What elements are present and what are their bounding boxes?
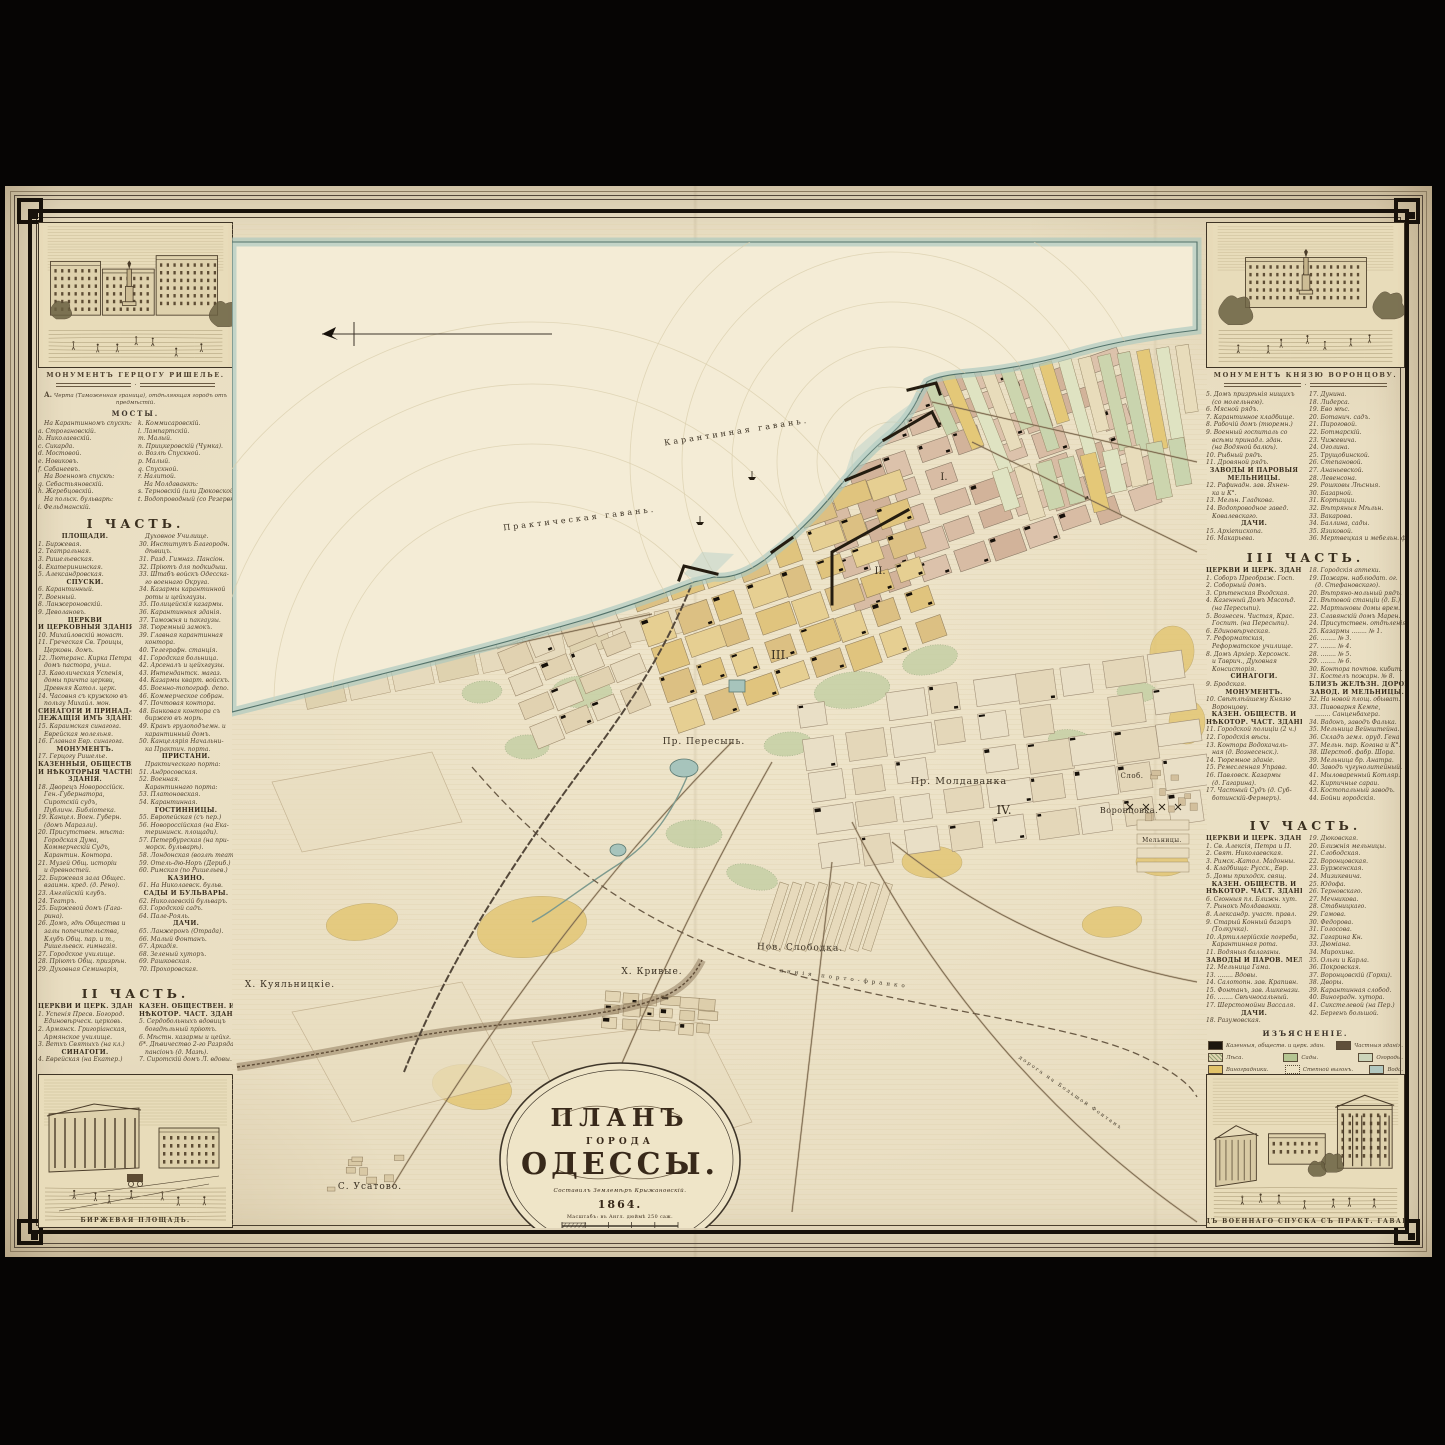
map-sheet: МОНУМЕНТЪ ГЕРЦОГУ РИШЕЛЬЕ. · А. Черта (Т… [5, 186, 1432, 1257]
list-line: Армянское училище. [38, 1034, 132, 1042]
list-line: Церковн. домъ. [38, 647, 132, 655]
list-line: ДАЧИ. [1206, 1010, 1302, 1018]
list-line: 18. Лидерса. [1309, 399, 1405, 407]
list-line: домы причта церкви, [38, 677, 132, 685]
map-key-label: Частныя зданія. [1354, 1043, 1403, 1049]
list-line: 7. Сиротскій домъ Л. вдовы. [139, 1056, 233, 1064]
list-line: 25. Юдофа. [1309, 881, 1405, 889]
list-line: Ришельевск. гимназія. [38, 943, 132, 951]
list-line: 59. Отель-дю-Норъ (Дериб.) [139, 860, 233, 868]
list-line: 13. Каѳолическая Успенія, [38, 670, 132, 678]
bridges-title: МОСТЫ. [38, 409, 233, 418]
list-line: КАЗЕН. ОБЩЕСТВ. И [1206, 711, 1302, 719]
map-key-label: Огороды. [1376, 1055, 1403, 1061]
list-line: 20. Вѣтряно-мольный рядъ. [1309, 590, 1405, 598]
frame-corner-ornament [1394, 198, 1420, 224]
list-line: 8. Ланжероновскій. [38, 601, 132, 609]
list-line: 39. Главная карантинная [139, 632, 233, 640]
list-line: терининск. площади). [139, 829, 233, 837]
list-line: Сиротскій судъ, [38, 799, 132, 807]
list-line: Городская Дума, [38, 837, 132, 845]
list-line: 40. Виноградн. хутора. [1309, 994, 1405, 1002]
map-key-label: Степной выгонъ. [1303, 1067, 1353, 1073]
list-line: Практическаго порта: [139, 761, 233, 769]
map-key-label: Виноградники. [1226, 1067, 1268, 1073]
list-line: p. Малый. [138, 458, 236, 466]
list-line: карантинный домъ. [139, 731, 233, 739]
list-line: 31. Костелъ пожарн. № 8. [1309, 673, 1405, 681]
list-line: МОНУМЕНТЪ. [1206, 689, 1302, 697]
list-line: залы попечительства, [38, 928, 132, 936]
list-line: Госпит. (на Пересыпи). [1206, 620, 1302, 628]
list-line: 49. Кранъ грузоподъемн. и [139, 723, 233, 731]
list-line: 8. Александр. участ. правл. [1206, 911, 1302, 919]
steppe-swatch-icon [1285, 1065, 1300, 1074]
list-line: НѢКОТОР. ЧАСТ. ЗДАНІЯ. [1206, 888, 1302, 896]
list-line: 19. Пожарн. наблюдат. ог. [1309, 575, 1405, 583]
forest-swatch-icon [1208, 1053, 1223, 1062]
list-line: g. Себастьяновскій. [38, 481, 132, 489]
list-line: 1. Св. Алексія, Петра и П. [1206, 843, 1302, 851]
list-line: Духовное Училище. [139, 533, 233, 541]
list-line: БЛИЗЪ ЖЕЛѢЗН. ДОРОГИ [1309, 681, 1405, 689]
list-line: s. Терновскій (или Дюковской дамбы). [138, 488, 236, 496]
list-line: 15. Архіепископа. [1206, 528, 1302, 536]
list-line: 20. Ботанич. садъ. [1309, 414, 1405, 422]
list-line: 30. Базарной. [1309, 490, 1405, 498]
list-line: 16. ........ Свѣчносальный. [1206, 994, 1302, 1002]
list-line: 43. Костопальный заводъ. [1309, 787, 1405, 795]
list-line: 24. Оголина. [1309, 444, 1405, 452]
list-line: 17. Шерстомойни Вассаля. [1206, 1002, 1302, 1010]
list-line: (на Водяной балкѣ). [1206, 444, 1302, 452]
list-line: 28. Левенсона. [1309, 475, 1405, 483]
list-line: Карантиннаго порта: [139, 784, 233, 792]
list-line: 40. Телеграфн. станція. [139, 647, 233, 655]
list-line: 48. Банковая контора съ [139, 708, 233, 716]
list-line: ЦЕРКВИ И ЦЕРК. ЗДАН. [1206, 567, 1302, 575]
map-label: III. [771, 648, 789, 662]
list-line: 18. Дворецъ Новороссійск. [38, 784, 132, 792]
boundary-note: А. Черта (Таможенная граница), отдѣляюща… [39, 391, 232, 407]
map-key-title: ИЗЪЯСНЕНІЕ. [1206, 1029, 1405, 1038]
list-line: 10. Артиллерійскіе погреба, [1206, 934, 1302, 942]
list-line: 44. Бойни городскія. [1309, 795, 1405, 803]
list-line: 24. Присутствен. отдѣленія. [1309, 620, 1405, 628]
list-line: 23. Чижевича. [1309, 437, 1405, 445]
cartouche-text: Составилъ Землемѣръ Крыжановскій. [554, 1188, 687, 1194]
list-line: ка Практич. порта. [139, 746, 233, 754]
list-line: пансіонъ (д. Мазѣ). [139, 1049, 233, 1057]
list-line: 24. Театръ. [38, 898, 132, 906]
list-line: 37. Таможня и пакгаузы. [139, 617, 233, 625]
list-line: 7. Карантинное кладбище. [1206, 414, 1302, 422]
list-line: 33. Дюміана. [1309, 941, 1405, 949]
list-line: 44. Казармы кварт. войскъ. [139, 677, 233, 685]
map-key-item: Частныя зданія. [1336, 1041, 1403, 1050]
list-line: 69. Рашковская. [139, 958, 233, 966]
list-line: k. Коммисаровскій. [138, 420, 236, 428]
list-line: 17. Герцогу Ришелье. [38, 753, 132, 761]
frame-corner-ornament [17, 198, 43, 224]
city-map: Карантинная гавань.Практическая гавань.П… [232, 222, 1207, 1228]
list-line: Ковалевскаго. [1206, 513, 1302, 521]
map-label: Х. Кривые. [621, 967, 682, 977]
list-line: 6. Мясной рядъ. [1206, 406, 1302, 414]
map-label: Нов. Слободка. [757, 941, 843, 954]
list-line: 58. Лондонская (возлѣ теат.) [139, 852, 233, 860]
cartouche-text: ПЛАНЪ [550, 1103, 689, 1132]
list-line: 36. Складъ земл. оруд. Гена. [1309, 734, 1405, 742]
list-line: НѢКОТОР. ЧАСТ. ЗДАНІЕ. [139, 1011, 233, 1019]
part2-list: ЦЕРКВИ И ЦЕРК. ЗДАНІЯ.1. Успенія Пресв. … [38, 1003, 233, 1065]
list-line: b. Николаевскій. [38, 435, 132, 443]
list-line: роты и цейхгаузы. [139, 594, 233, 602]
list-line: 17. Дунина. [1309, 391, 1405, 399]
list-line: 31. Разд. Гимназ. Пансіон. [139, 556, 233, 564]
list-line: 14. Тюремное зданіе. [1206, 757, 1302, 765]
list-line: 25. Трущобинской. [1309, 452, 1405, 460]
list-line: 2. Свят. Николаевская. [1206, 850, 1302, 858]
list-line: 30. Федорова. [1309, 919, 1405, 927]
list-line: 12. Мельница Гама. [1206, 964, 1302, 972]
list-line: 36. Мертвецкая и мебельн. ф. [1309, 535, 1405, 543]
list-line: 8. Домъ Архіер. Херсонск. [1206, 651, 1302, 659]
list-line: 11. Дровяной рядъ. [1206, 459, 1302, 467]
list-line: ЦЕРКВИ И ЦЕРК. ЗДАН. [1206, 835, 1302, 843]
list-line: КАЗЕННЫЯ, ОБЩЕСТВЕН. [38, 761, 132, 769]
list-line: КАЗЕН. ОБЩЕСТВЕН. И [139, 1003, 233, 1011]
map-label: Слоб. [1121, 772, 1144, 780]
list-line: 21. Слободская. [1309, 850, 1405, 858]
photo-background: МОНУМЕНТЪ ГЕРЦОГУ РИШЕЛЬЕ. · А. Черта (Т… [0, 0, 1445, 1445]
list-line: 52. Военная. [139, 776, 233, 784]
list-line: 41. Сикстелевой (на Пер.) [1309, 1002, 1405, 1010]
map-key-label: Лѣса. [1226, 1055, 1243, 1061]
map-label: IV. [996, 803, 1011, 817]
list-line: ЛЕЖАЩІЯ ИМЪ ЗДАНІЯ. [38, 715, 132, 723]
list-line: 2. Театральная. [38, 548, 132, 556]
part4-list: ЦЕРКВИ И ЦЕРК. ЗДАН.1. Св. Алексія, Петр… [1206, 835, 1405, 1025]
list-line: o. Возлѣ Спускной. [138, 450, 236, 458]
list-line: f. Сабанеевъ. [38, 466, 132, 474]
list-line: 32. Пріютъ для подкидыш. [139, 564, 233, 572]
list-line: 33. Вакарова. [1309, 513, 1405, 521]
list-line: d. Мостовой. [38, 450, 132, 458]
list-line: 12. Лютеранс. Кирка Петра, [38, 655, 132, 663]
list-line: СИНАГОГИ. [38, 1049, 132, 1057]
map-label: I. [940, 472, 947, 483]
list-line: 1. Соборъ Преображ. Госп. [1206, 575, 1302, 583]
list-line: го военнаго Округа. [139, 579, 233, 587]
ornament-divider: · [56, 382, 215, 388]
list-line: e. Новиковъ. [38, 458, 132, 466]
list-line: 27. Мечникова. [1309, 896, 1405, 904]
list-line: Ген.-Губернатора, [38, 791, 132, 799]
list-line: КАЗЕН. ОБЩЕСТВ. И [1206, 881, 1302, 889]
list-line: 6. Единовѣрческая. [1206, 628, 1302, 636]
legend-column-right: МОНУМЕНТЪ КНЯЗЮ ВОРОНЦОВУ. · 5. Домъ при… [1206, 222, 1405, 1228]
list-line: Клубъ Общ. пар. и т., [38, 936, 132, 944]
list-line: И НѢКОТОРЫЯ ЧАСТНЫЯ [38, 769, 132, 777]
garden-swatch-icon [1283, 1053, 1298, 1062]
list-line: богадѣльный пріютъ. [139, 1026, 233, 1034]
list-line: ка и К°. [1206, 490, 1302, 498]
list-line: 3. Римск.-Катол. Мадонны. [1206, 858, 1302, 866]
list-line: ЗАВОД. И МЕЛЬНИЦЫ. [1309, 689, 1405, 697]
list-line: n. Прицкеровскій (Чумка). [138, 443, 236, 451]
list-line: морск. бульварѣ). [139, 844, 233, 852]
list-line: 35. Ольги и Карла. [1309, 957, 1405, 965]
list-line: ная (д. Вознесенск.). [1206, 749, 1302, 757]
list-line: взаимн. кред. (д. Рено). [38, 882, 132, 890]
map-key-item: Степной выгонъ. [1285, 1065, 1353, 1074]
list-line: Карантинная рота. [1206, 941, 1302, 949]
list-line: 39. Карантинная слобод. [1309, 987, 1405, 995]
list-line: 32. На новой площ. обыват. [1309, 696, 1405, 704]
list-line: 4. Екатерининская. [38, 564, 132, 572]
list-line: 36. Покровская. [1309, 964, 1405, 972]
list-line: 5. Домы приходск. свящ. [1206, 873, 1302, 881]
list-line: ПЛОЩАДИ. [38, 533, 132, 541]
list-line: 38. Дворы. [1309, 979, 1405, 987]
list-line: 3. Срѣтенская Входская. [1206, 590, 1302, 598]
list-line: дѣвицъ. [139, 548, 233, 556]
list-line: 42. Арсеналъ и цейхгаузы. [139, 662, 233, 670]
list-line: 70. Прохоровская. [139, 966, 233, 974]
list-line: 26. Терновскаго. [1309, 888, 1405, 896]
list-line: МЕЛЬНИЦЫ. [1206, 475, 1302, 483]
list-line: 42. Кирпичные сараи. [1309, 780, 1405, 788]
list-line: 37. Воронцовскій (Горки). [1309, 972, 1405, 980]
list-line: 9. Деволановъ. [38, 609, 132, 617]
list-line: 29. Рошковы Лѣсныя. [1309, 482, 1405, 490]
list-line: контора. [139, 639, 233, 647]
map-label: Мельницы. [1142, 837, 1182, 844]
list-line: рина). [38, 913, 132, 921]
list-line: m. Малый. [138, 435, 236, 443]
list-line: 31. Кортацци. [1309, 497, 1405, 505]
vignette-exchange-square: БИРЖЕВАЯ ПЛОЩАДЬ. [38, 1074, 233, 1228]
map-label: Пр. Молдаванка [911, 776, 1007, 787]
list-line: 16. Павловск. Казармы [1206, 772, 1302, 780]
vignette-caption: МОНУМЕНТЪ ГЕРЦОГУ РИШЕЛЬЕ. [38, 371, 233, 379]
list-line: 22. Ботмарскій. [1309, 429, 1405, 437]
list-line: 21. Музей Общ. исторіи [38, 860, 132, 868]
map-key-item: Казенныя, обществ. и церк. здан. [1208, 1041, 1325, 1050]
list-line: 23. Англійскій клубъ. [38, 890, 132, 898]
list-line: 4. Казенный Домъ Мясоѣд. [1206, 597, 1302, 605]
list-line: ........ Санценбахера. [1309, 711, 1405, 719]
list-line: 64. Пале-Рояль. [139, 913, 233, 921]
list-line: 6. Карантинный. [38, 586, 132, 594]
list-line: i. Фельдманскій. [38, 504, 132, 512]
list-line: 11. Греческая Св. Троицы, [38, 639, 132, 647]
list-line: 20. Присутствен. мѣста: [38, 829, 132, 837]
list-line: 55. Европейская (съ пер.) [139, 814, 233, 822]
list-line: 34. Вадонъ, заводъ Фалька. [1309, 719, 1405, 727]
list-line: 43. Интендантск. магаз. [139, 670, 233, 678]
list-line: 15. Караимская синагога. [38, 723, 132, 731]
list-line: 13. Мельн. Гладкова. [1206, 497, 1302, 505]
list-line: 17. Частный Судъ (д. Суб- [1206, 787, 1302, 795]
list-line: 7. Рынокъ Молдаванки. [1206, 903, 1302, 911]
list-line: 3. Ришельевская. [38, 556, 132, 564]
list-line: 39. Мельница бр. Анатра. [1309, 757, 1405, 765]
list-line: 62. Николаевскій бульваръ. [139, 898, 233, 906]
list-line: 21. Вѣтовой станціи (д. Б.) [1309, 597, 1405, 605]
list-line: 61. На Николаевск. бульв. [139, 882, 233, 890]
part3-title: III ЧАСТЬ. [1206, 550, 1405, 565]
map-key: Казенныя, обществ. и церк. здан.Частныя … [1206, 1041, 1405, 1074]
list-line: 67. Аркадія. [139, 943, 233, 951]
list-line: (со молельнею). [1206, 399, 1302, 407]
list-line: 26. Домъ, гдѣ Общества и [38, 920, 132, 928]
list-line: 9. Бродская. [1206, 681, 1302, 689]
list-line: ЦЕРКВИ И ЦЕРК. ЗДАНІЯ. [38, 1003, 132, 1011]
list-line: 15. Ремесленная Управа. [1206, 764, 1302, 772]
list-line: ДАЧИ. [1206, 520, 1302, 528]
list-line: 30. Контора почтов. кибит. [1309, 666, 1405, 674]
list-line: ЗАВОДЫ И ПАРОВ. МЕЛЬН. [1206, 957, 1302, 965]
vignette-richelieu-monument [38, 222, 233, 368]
map-label: Х. Куяльницкіе. [245, 980, 335, 990]
list-line: 32. Гагарина Кн. [1309, 934, 1405, 942]
list-line: 20. Ближнія мельницы. [1309, 843, 1405, 851]
map-label: Пр. Пересыпь. [663, 737, 746, 747]
map-label: С. Усатово. [338, 1182, 402, 1192]
list-line: 8. Рабочій домъ (тюремн.) [1206, 421, 1302, 429]
map-label: II. [874, 566, 885, 577]
map-key-label: Сады. [1301, 1055, 1318, 1061]
list-line: 40. Заводъ чугунолитейный. [1309, 764, 1405, 772]
list-line: 19. Ево мѣс. [1309, 406, 1405, 414]
list-line: 23. Славянскій домъ Марен. [1309, 613, 1405, 621]
list-line: 42. Бергенъ большой. [1309, 1010, 1405, 1018]
list-line: И ЦЕРКОВНЫЯ ЗДАНІЯ. [38, 624, 132, 632]
list-line: 26. Степановой. [1309, 459, 1405, 467]
list-line: 2. Армянск. Григоріанская, [38, 1026, 132, 1034]
list-line: 16. Главная Евр. синагога. [38, 738, 132, 746]
list-line: 24. Мизикевича. [1309, 873, 1405, 881]
list-line: c. Сикарда. [38, 443, 132, 451]
list-line: 51. Андросовская. [139, 769, 233, 777]
cartouche-text: ГОРОДА [586, 1137, 654, 1147]
list-line: ЦЕРКВИ [38, 617, 132, 625]
list-line: ЗАВОДЫ И ПАРОВЫЯ [1206, 467, 1302, 475]
list-line: 4. Кладбища: Русск., Евр. [1206, 865, 1302, 873]
map-key-item: Сады. [1283, 1053, 1318, 1062]
list-line: 33. Пивоварня Кемпе, [1309, 704, 1405, 712]
list-line: ГОСТИННИЦЫ. [139, 807, 233, 815]
list-line: ПРИСТАНИ. [139, 753, 233, 761]
list-line: 56. Новороссійская (на Ека- [139, 822, 233, 830]
cartouche-text: ОДЕССЫ. [521, 1147, 719, 1182]
list-line: ЗДАНІЯ. [38, 776, 132, 784]
list-line: 35. Язиковой. [1309, 528, 1405, 536]
list-line: 35. Полицейскія казармы. [139, 601, 233, 609]
list-line: Консисторія. [1206, 666, 1302, 674]
water-swatch-icon [1369, 1065, 1384, 1074]
list-line: 26. ........ № 3. [1309, 635, 1405, 643]
list-line: 14. Водопроводное завед. [1206, 505, 1302, 513]
continued-list: 5. Домъ призрѣнія нищихъ (со молельнею).… [1206, 391, 1405, 545]
list-line: Единовѣрческ. церковь. [38, 1018, 132, 1026]
list-line: 4. Еврейская (на Екатер.) [38, 1056, 132, 1064]
list-line: 5. Домъ призрѣнія нищихъ [1206, 391, 1302, 399]
kitchen-swatch-icon [1358, 1053, 1373, 1062]
bridges-list: На Карантинномъ спускѣ:a. Строгановскій.… [38, 420, 233, 511]
list-line: и древностей. [38, 867, 132, 875]
part4-title: IV ЧАСТЬ. [1206, 818, 1405, 833]
list-line: 2. Соборный домъ. [1206, 582, 1302, 590]
list-line: НѢКОТОР. ЧАСТ. ЗДАНІЯ. [1206, 719, 1302, 727]
bldg-private-swatch-icon [1336, 1041, 1351, 1050]
list-line: 25. Казармы ........ № 1. [1309, 628, 1405, 636]
list-line: Карантин. Контора. [38, 852, 132, 860]
list-line: 37. Мельн. пар. Когана и К°. [1309, 742, 1405, 750]
list-line: 22. Биржевая зала Общес. [38, 875, 132, 883]
part1-title: I ЧАСТЬ. [38, 516, 233, 531]
list-line: 6. Мѣстн. казармы и цейхг. [139, 1034, 233, 1042]
list-line: 38. Тюремный замокъ. [139, 624, 233, 632]
list-line: 22. Мартыновы домы врем. [1309, 605, 1405, 613]
list-line: (д. Стефановскаго). [1309, 582, 1405, 590]
list-line: 10. Свѣтлѣйшему Князю [1206, 696, 1302, 704]
list-line: 16. Макарьева. [1206, 535, 1302, 543]
list-line: СИНАГОГИ. [1206, 673, 1302, 681]
list-line: 28. ........ № 5. [1309, 651, 1405, 659]
list-line: На Молдаванкѣ: [138, 481, 236, 489]
list-line: 6*. Дѣвичество 2-го Разряда [139, 1041, 233, 1049]
cartouche-text: 1864. [598, 1198, 642, 1211]
list-line: Публичн. Библіотека. [38, 807, 132, 815]
list-line: 11. Водяныя балаганы. [1206, 949, 1302, 957]
list-line: 5. Сердобольныхъ вдовицъ [139, 1018, 233, 1026]
vignette-caption: МОНУМЕНТЪ КНЯЗЮ ВОРОНЦОВУ. [1206, 371, 1405, 379]
svg-text:БИРЖЕВАЯ ПЛОЩАДЬ.: БИРЖЕВАЯ ПЛОЩАДЬ. [80, 1217, 190, 1224]
list-line: 19. Канцел. Воен. Губерн. [38, 814, 132, 822]
list-line: q. Спускной. [138, 466, 236, 474]
list-line: МОНУМЕНТЪ. [38, 746, 132, 754]
list-line: 7. Военный. [38, 594, 132, 602]
list-line: биржею въ морѣ. [139, 715, 233, 723]
list-line: домъ пастора, учил. [38, 662, 132, 670]
list-line: и Таврич., Духовная [1206, 658, 1302, 666]
list-line: 34. Баллина, сады. [1309, 520, 1405, 528]
map-label: Воронцовка. [1100, 806, 1158, 815]
list-line: 38. Шерстоб. фабр. Шора. [1309, 749, 1405, 757]
list-line: САДЫ И БУЛЬВАРЫ. [139, 890, 233, 898]
list-line: 9. Военный госпиталь со [1206, 429, 1302, 437]
list-line: всѣми принадл. здан. [1206, 437, 1302, 445]
list-line: 6. Сгонныя пл. Ближн. хут. [1206, 896, 1302, 904]
list-line: 54. Карантинная. [139, 799, 233, 807]
list-line: 21. Пироговой. [1309, 421, 1405, 429]
list-line: СИНАГОГИ И ПРИНАД- [38, 708, 132, 716]
list-line: 29. Духовная Семинарія, [38, 966, 132, 974]
list-line: 13. Контора Водокачаль- [1206, 742, 1302, 750]
legend-column-left: МОНУМЕНТЪ ГЕРЦОГУ РИШЕЛЬЕ. · А. Черта (Т… [38, 222, 233, 1228]
note-text: Черта (Таможенная граница), отдѣляющая г… [54, 393, 227, 406]
list-line: h. Жеребцовскій. [38, 488, 132, 496]
svg-text:ВИДЪ ВОЕННАГО СПУСКА СЪ ПРАКТ.: ВИДЪ ВОЕННАГО СПУСКА СЪ ПРАКТ. ГАВАНИ. [1207, 1218, 1404, 1225]
list-line: r. Налитой. [138, 473, 236, 481]
list-line: 63. Городской садъ. [139, 905, 233, 913]
bldg-public-swatch-icon [1208, 1041, 1223, 1050]
list-line: КАЗИНО. [139, 875, 233, 883]
list-line: 10. Рыбный рядъ. [1206, 452, 1302, 460]
